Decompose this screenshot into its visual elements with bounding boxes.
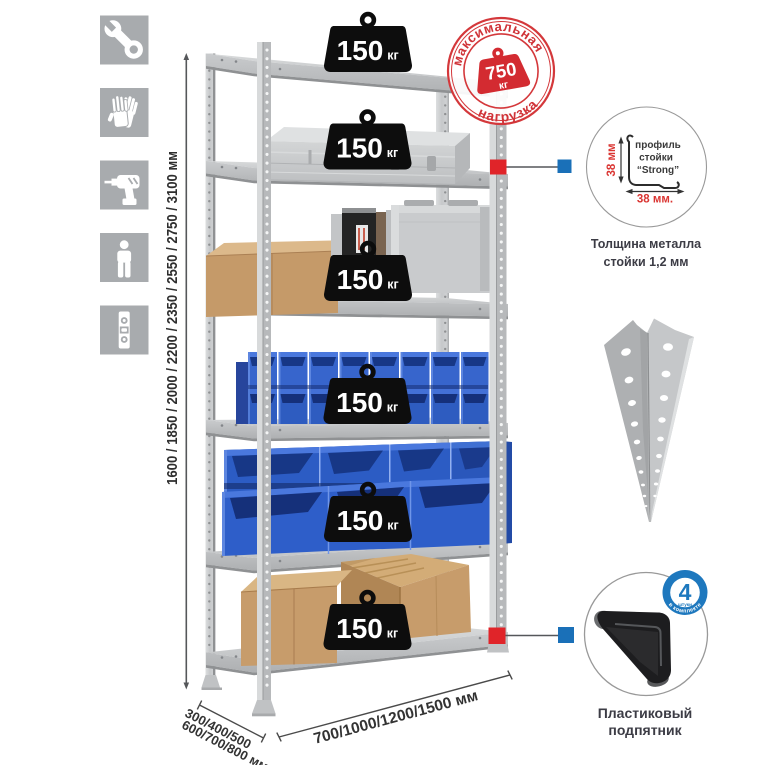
svg-text:кг: кг [498, 80, 509, 92]
svg-text:стойки: стойки [639, 153, 673, 164]
svg-text:подпятник: подпятник [608, 722, 682, 738]
svg-text:1600 / 1850 / 2000 / 2200 / 23: 1600 / 1850 / 2000 / 2200 / 2350 / 2550 … [165, 151, 181, 485]
svg-text:стойки 1,2 мм: стойки 1,2 мм [604, 255, 689, 269]
svg-text:38 мм.: 38 мм. [637, 194, 673, 206]
svg-text:профиль: профиль [635, 139, 681, 151]
svg-text:38 мм: 38 мм [606, 143, 618, 176]
svg-text:“Strong”: “Strong” [637, 165, 679, 176]
svg-text:штуки: штуки [678, 602, 692, 607]
svg-text:Пластиковый: Пластиковый [598, 705, 693, 721]
svg-text:Толщина металла: Толщина металла [591, 237, 702, 251]
